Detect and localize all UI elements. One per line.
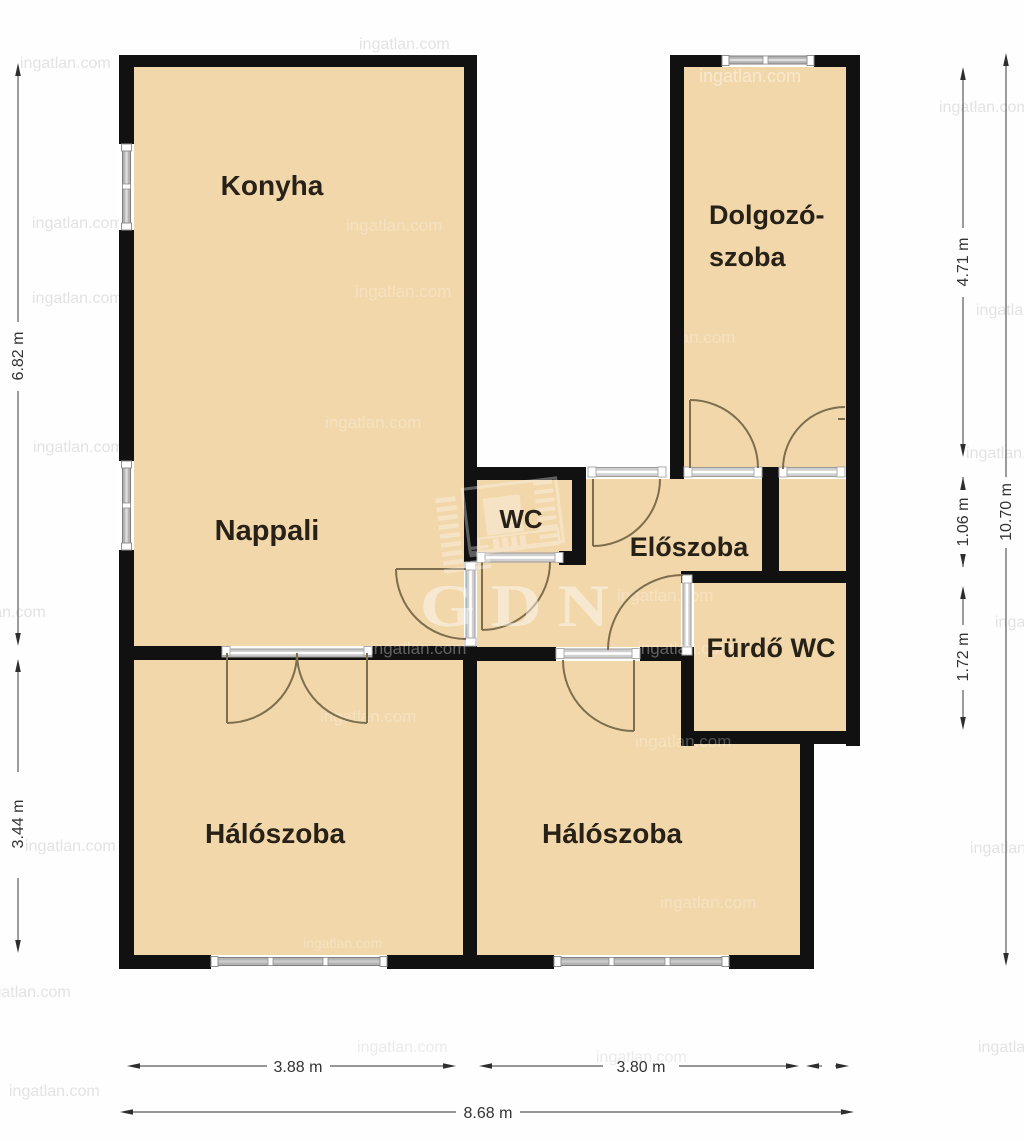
svg-text:szoba: szoba: [709, 242, 787, 272]
svg-text:Hálószoba: Hálószoba: [205, 818, 345, 849]
svg-text:1.06 m: 1.06 m: [955, 498, 972, 547]
svg-text:ingatlan.com: ingatlan.com: [0, 604, 46, 621]
svg-text:ingatlan.com: ingatlan.com: [660, 893, 756, 912]
svg-text:ingatlan.com: ingatlan.com: [359, 36, 450, 53]
svg-text:3.44 m: 3.44 m: [10, 800, 27, 849]
svg-text:Dolgozó-: Dolgozó-: [709, 200, 824, 230]
svg-text:10.70 m: 10.70 m: [998, 483, 1015, 541]
svg-text:ingatlan.com: ingatlan.com: [639, 328, 735, 347]
svg-text:ingatlan.com: ingatlan.com: [939, 99, 1024, 116]
svg-text:ingatlan.com: ingatlan.com: [355, 282, 451, 301]
svg-text:ingatlan.com: ingatlan.com: [370, 639, 466, 658]
svg-text:Hálószoba: Hálószoba: [542, 818, 682, 849]
svg-text:ingatlan.com: ingatlan.com: [976, 302, 1024, 319]
svg-text:1.72 m: 1.72 m: [955, 633, 972, 682]
svg-text:Fürdő WC: Fürdő WC: [707, 633, 836, 663]
svg-text:8.68 m: 8.68 m: [464, 1105, 513, 1122]
svg-text:ingatlan.com: ingatlan.com: [635, 732, 731, 751]
svg-text:GDN: GDN: [420, 573, 625, 639]
svg-text:ingatlan.com: ingatlan.com: [970, 840, 1024, 857]
svg-text:ingatlan.com: ingatlan.com: [20, 55, 111, 72]
svg-text:Konyha: Konyha: [221, 170, 324, 201]
svg-text:WC: WC: [499, 504, 543, 534]
svg-text:ingatlan.com: ingatlan.com: [0, 984, 71, 1001]
svg-text:3.88 m: 3.88 m: [274, 1059, 323, 1076]
svg-text:4.71 m: 4.71 m: [955, 238, 972, 287]
svg-text:ingatlan.com: ingatlan.com: [325, 413, 421, 432]
svg-text:ingatlan.com: ingatlan.com: [320, 707, 416, 726]
svg-text:ingatlan.com: ingatlan.com: [995, 614, 1024, 631]
svg-text:ingatlan.com: ingatlan.com: [32, 215, 123, 232]
svg-text:ingatlan.com: ingatlan.com: [303, 935, 382, 951]
svg-text:ingatlan.com: ingatlan.com: [33, 439, 124, 456]
svg-text:ingatlan.com: ingatlan.com: [32, 290, 123, 307]
svg-text:ingatlan.com: ingatlan.com: [978, 1039, 1024, 1056]
svg-text:ingatlan.com: ingatlan.com: [357, 1039, 448, 1056]
svg-text:Nappali: Nappali: [215, 515, 320, 547]
svg-text:ingatlan.com: ingatlan.com: [9, 1083, 100, 1100]
svg-text:3.80 m: 3.80 m: [617, 1059, 666, 1076]
svg-text:ingatlan.com: ingatlan.com: [25, 838, 116, 855]
svg-text:Előszoba: Előszoba: [630, 532, 750, 562]
svg-text:ingatlan.com: ingatlan.com: [966, 445, 1024, 462]
svg-text:ingatlan.com: ingatlan.com: [346, 216, 442, 235]
svg-text:ingatlan.com: ingatlan.com: [699, 66, 801, 86]
svg-text:6.82 m: 6.82 m: [10, 332, 27, 381]
